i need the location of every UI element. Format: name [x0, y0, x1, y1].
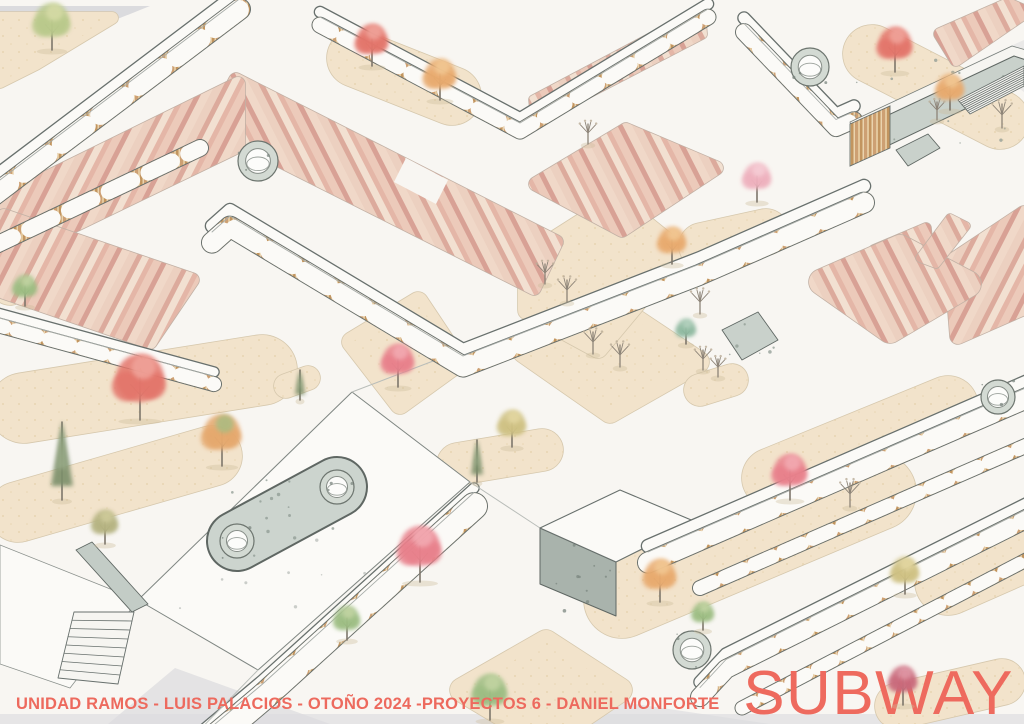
sand-patch [18, 456, 212, 512]
skylight [673, 631, 711, 669]
deck-patch [822, 248, 968, 330]
credits-text: UNIDAD RAMOS - LUIS PALACIOS - OTOÑO 202… [16, 695, 720, 714]
tree [91, 510, 118, 549]
axonometric-drawing [0, 0, 1024, 724]
skylight [238, 141, 278, 181]
tree [691, 602, 714, 635]
deck-patch [536, 130, 716, 230]
skylight [981, 379, 1015, 414]
skylight [220, 524, 254, 559]
tree [742, 163, 771, 207]
architecture-presentation-board: UNIDAD RAMOS - LUIS PALACIOS - OTOÑO 202… [0, 0, 1024, 724]
sand-patch [458, 450, 542, 464]
sand-patch [700, 380, 732, 390]
skylight [320, 470, 354, 504]
project-title: SUBWAY [743, 665, 1014, 724]
skylight [791, 48, 829, 86]
tree [690, 287, 710, 318]
